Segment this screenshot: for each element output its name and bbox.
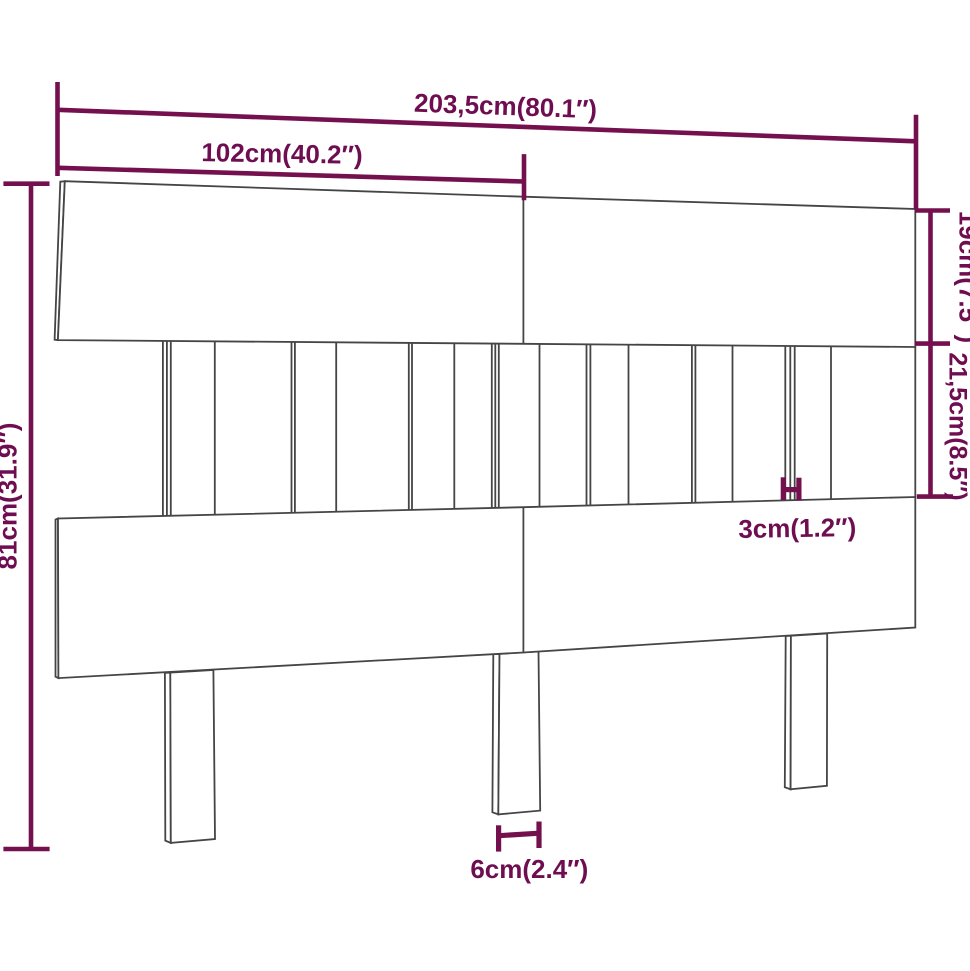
svg-text:21,5cm(8.5″): 21,5cm(8.5″) [944,352,970,500]
svg-text:6cm(2.4″): 6cm(2.4″) [470,854,588,884]
svg-text:19cm(7.5″): 19cm(7.5″) [954,211,970,343]
svg-text:102cm(40.2″): 102cm(40.2″) [201,137,363,170]
svg-text:3cm(1.2″): 3cm(1.2″) [738,512,856,544]
svg-text:81cm(31.9″): 81cm(31.9″) [0,423,23,570]
